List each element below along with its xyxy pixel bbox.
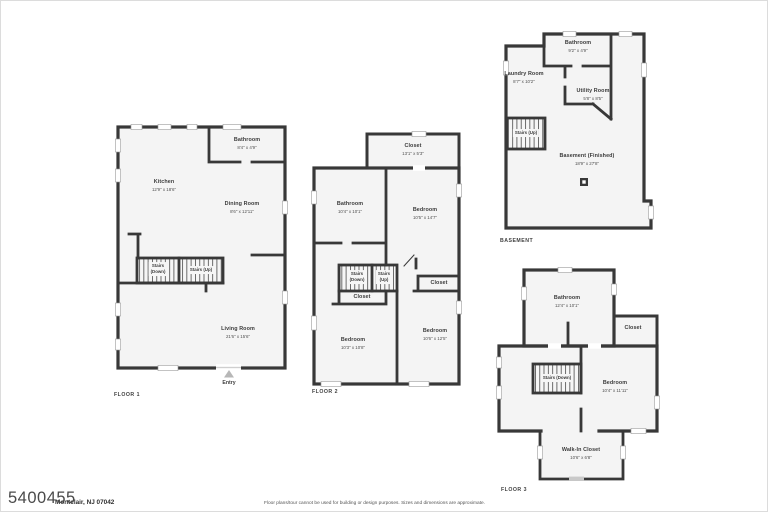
room-label-f1-bathroom: Bathroom 8'4" x 4'9" <box>234 137 260 151</box>
room-name: Bedroom <box>341 337 365 345</box>
stairs-label-f2-up: Stairs (Up) <box>376 270 392 284</box>
floor1-entry-threshold <box>216 367 241 368</box>
floor3-tag: FLOOR 3 <box>501 487 527 493</box>
room-label-f2-closet-top: Closet 13'1" x 5'3" <box>402 143 424 157</box>
room-label-f2-bathroom: Bathroom 10'4" x 10'1" <box>337 201 363 215</box>
stairs-label-f2-down: Stairs (Down) <box>348 270 367 284</box>
stairs-label-f1-down: Stairs (Down) <box>149 262 168 276</box>
stairs-label-f1-up: Stairs (Up) <box>188 266 214 274</box>
room-label-f3-bathroom: Bathroom 12'4" x 10'1" <box>554 295 580 309</box>
floor2-plan-drawing <box>307 127 467 393</box>
entry-label: Entry <box>222 380 235 386</box>
floor2-tag: FLOOR 2 <box>312 389 338 395</box>
room-label-b-basement-finished: Basement (Finished) 18'9" x 27'8" <box>560 153 615 167</box>
room-dims: 8'6" x 12'11" <box>225 209 260 215</box>
room-dims: 8'7" x 10'2" <box>504 79 543 85</box>
floor2-closet-door-opening <box>413 165 425 171</box>
room-name: Bathroom <box>565 40 591 48</box>
room-dims: 10'5" x 14'7" <box>413 215 437 221</box>
room-name: Dining Room <box>225 201 260 209</box>
room-name: Walk-In Closet <box>562 447 600 455</box>
room-dims: 10'4" x 11'11" <box>602 388 628 394</box>
room-dims: 10'4" x 10'1" <box>337 209 363 215</box>
room-dims: 21'6" x 15'6" <box>221 334 255 340</box>
room-label-b-bathroom: Bathroom 9'2" x 4'9" <box>565 40 591 54</box>
room-name: Closet <box>624 325 641 333</box>
room-dims: 13'1" x 5'3" <box>402 151 424 157</box>
room-dims: 10'6" x 6'8" <box>562 455 600 461</box>
room-dims: 18'9" x 27'8" <box>560 161 615 167</box>
room-label-f1-kitchen: Kitchen 12'9" x 18'6" <box>152 179 176 193</box>
room-name: Basement (Finished) <box>560 153 615 161</box>
room-name: Closet <box>430 280 447 288</box>
room-label-f2-bedroom-bottom-right: Bedroom 10'6" x 12'5" <box>423 328 447 342</box>
stairs-label-f3-down: Stairs (Down) <box>541 374 573 382</box>
room-name: Utility Room <box>577 88 610 96</box>
room-label-f2-closet-right: Closet <box>430 280 447 288</box>
room-label-f3-bedroom: Bedroom 10'4" x 11'11" <box>602 380 628 394</box>
room-name: Laundry Room <box>504 71 543 79</box>
room-label-f1-dining-room: Dining Room 8'6" x 12'11" <box>225 201 260 215</box>
room-dims: 10'6" x 12'5" <box>423 336 447 342</box>
room-label-f3-closet: Closet <box>624 325 641 333</box>
property-id-watermark: 5400455 <box>8 489 76 508</box>
floor3-walkin-door <box>569 477 584 481</box>
room-name: Kitchen <box>152 179 176 187</box>
room-dims: 8'4" x 4'9" <box>234 145 260 151</box>
floor-plan-sheet: Bathroom 8'4" x 4'9" Kitchen 12'9" x 18'… <box>0 0 768 512</box>
support-post-center <box>582 180 585 183</box>
room-name: Bedroom <box>413 207 437 215</box>
room-label-b-laundry-room: Laundry Room 8'7" x 10'2" <box>504 71 543 85</box>
room-name: Closet <box>353 294 370 302</box>
entry-arrow-icon <box>224 370 234 378</box>
floor1-tag: FLOOR 1 <box>114 392 140 398</box>
room-dims: 12'9" x 18'6" <box>152 187 176 193</box>
room-label-f1-living-room: Living Room 21'6" x 15'6" <box>221 326 255 340</box>
room-dims: 10'3" x 10'8" <box>341 345 365 351</box>
room-name: Bedroom <box>602 380 628 388</box>
room-name: Bedroom <box>423 328 447 336</box>
room-name: Living Room <box>221 326 255 334</box>
room-label-f2-closet-mid: Closet <box>353 294 370 302</box>
room-dims: 12'4" x 10'1" <box>554 303 580 309</box>
room-label-b-utility-room: Utility Room 5'8" x 8'5" <box>577 88 610 102</box>
room-dims: 5'8" x 8'5" <box>577 96 610 102</box>
room-name: Bathroom <box>554 295 580 303</box>
basement-tag: BASEMENT <box>500 238 533 244</box>
floor1-plan-drawing <box>109 107 299 407</box>
room-name: Closet <box>402 143 424 151</box>
stairs-label-b-up: Stairs (Up) <box>513 129 539 137</box>
room-label-f3-walk-in-closet: Walk-In Closet 10'6" x 6'8" <box>562 447 600 461</box>
room-label-f2-bedroom-right: Bedroom 10'5" x 14'7" <box>413 207 437 221</box>
room-name: Bathroom <box>234 137 260 145</box>
room-name: Bathroom <box>337 201 363 209</box>
disclaimer-text: Floor plans/tour cannot be used for buil… <box>264 501 485 506</box>
room-label-f2-bedroom-bottom-left: Bedroom 10'3" x 10'8" <box>341 337 365 351</box>
room-dims: 9'2" x 4'9" <box>565 48 591 54</box>
